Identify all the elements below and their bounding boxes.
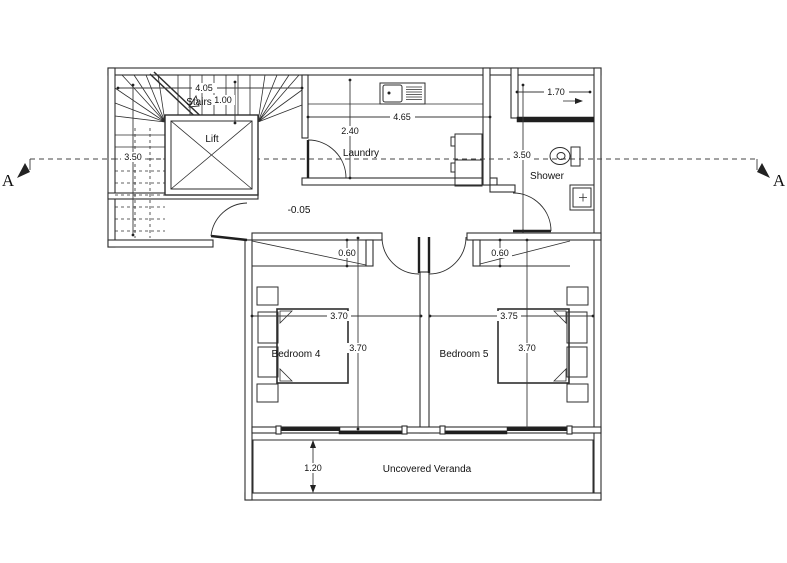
- svg-text:0.60: 0.60: [491, 248, 509, 258]
- floor-level-label: -0.05: [288, 205, 311, 216]
- svg-text:4.05: 4.05: [195, 83, 213, 93]
- svg-text:3.50: 3.50: [124, 152, 142, 162]
- svg-text:3.70: 3.70: [518, 343, 536, 353]
- svg-text:1.20: 1.20: [304, 463, 322, 473]
- room-label-laundry: Laundry: [343, 148, 379, 159]
- bed-bedroom4: [257, 287, 348, 402]
- section-marker-left: A: [2, 171, 15, 190]
- dimension-closet-bedroom5: 0.60: [488, 239, 512, 268]
- room-label-lift: Lift: [205, 134, 219, 145]
- dimension-veranda-depth: 1.20: [301, 440, 325, 493]
- svg-text:3.70: 3.70: [330, 311, 348, 321]
- toilet-icon: [550, 147, 580, 166]
- svg-text:3.75: 3.75: [500, 311, 518, 321]
- room-label-shower: Shower: [530, 171, 565, 182]
- svg-text:3.70: 3.70: [349, 343, 367, 353]
- dimension-laundry-depth: 2.40: [338, 79, 362, 180]
- room-label-stairs: Stairs: [186, 97, 212, 108]
- lift: [165, 115, 258, 195]
- room-label-bedroom5: Bedroom 5: [440, 349, 489, 360]
- door-bedroom4: [382, 237, 419, 274]
- floor-plan-drawing: A A: [0, 0, 787, 563]
- svg-text:4.65: 4.65: [393, 112, 411, 122]
- shower-tray-icon: [570, 185, 594, 210]
- bed-bedroom5: [498, 287, 588, 402]
- svg-text:2.40: 2.40: [341, 126, 359, 136]
- svg-text:1.70: 1.70: [547, 87, 565, 97]
- section-marker-right: A: [773, 171, 786, 190]
- room-label-bedroom4: Bedroom 4: [272, 349, 321, 360]
- closet-bedroom5: [473, 240, 570, 266]
- door-bedroom5: [429, 237, 466, 274]
- laundry-sink-icon: [380, 83, 425, 104]
- svg-text:0.60: 0.60: [338, 248, 356, 258]
- dimension-laundry-width: 4.65: [307, 112, 492, 122]
- entry-arrow-icon: [563, 98, 583, 104]
- dimension-bedroom5-depth: 3.70: [515, 239, 539, 431]
- floor-plan-sheet: A A: [0, 0, 787, 563]
- door-hall-stairs: [211, 203, 247, 240]
- room-label-veranda: Uncovered Veranda: [383, 464, 472, 475]
- dimension-shower-width: 1.70: [516, 87, 592, 97]
- svg-text:1.00: 1.00: [214, 95, 232, 105]
- svg-text:3.50: 3.50: [513, 150, 531, 160]
- door-shower: [513, 193, 551, 231]
